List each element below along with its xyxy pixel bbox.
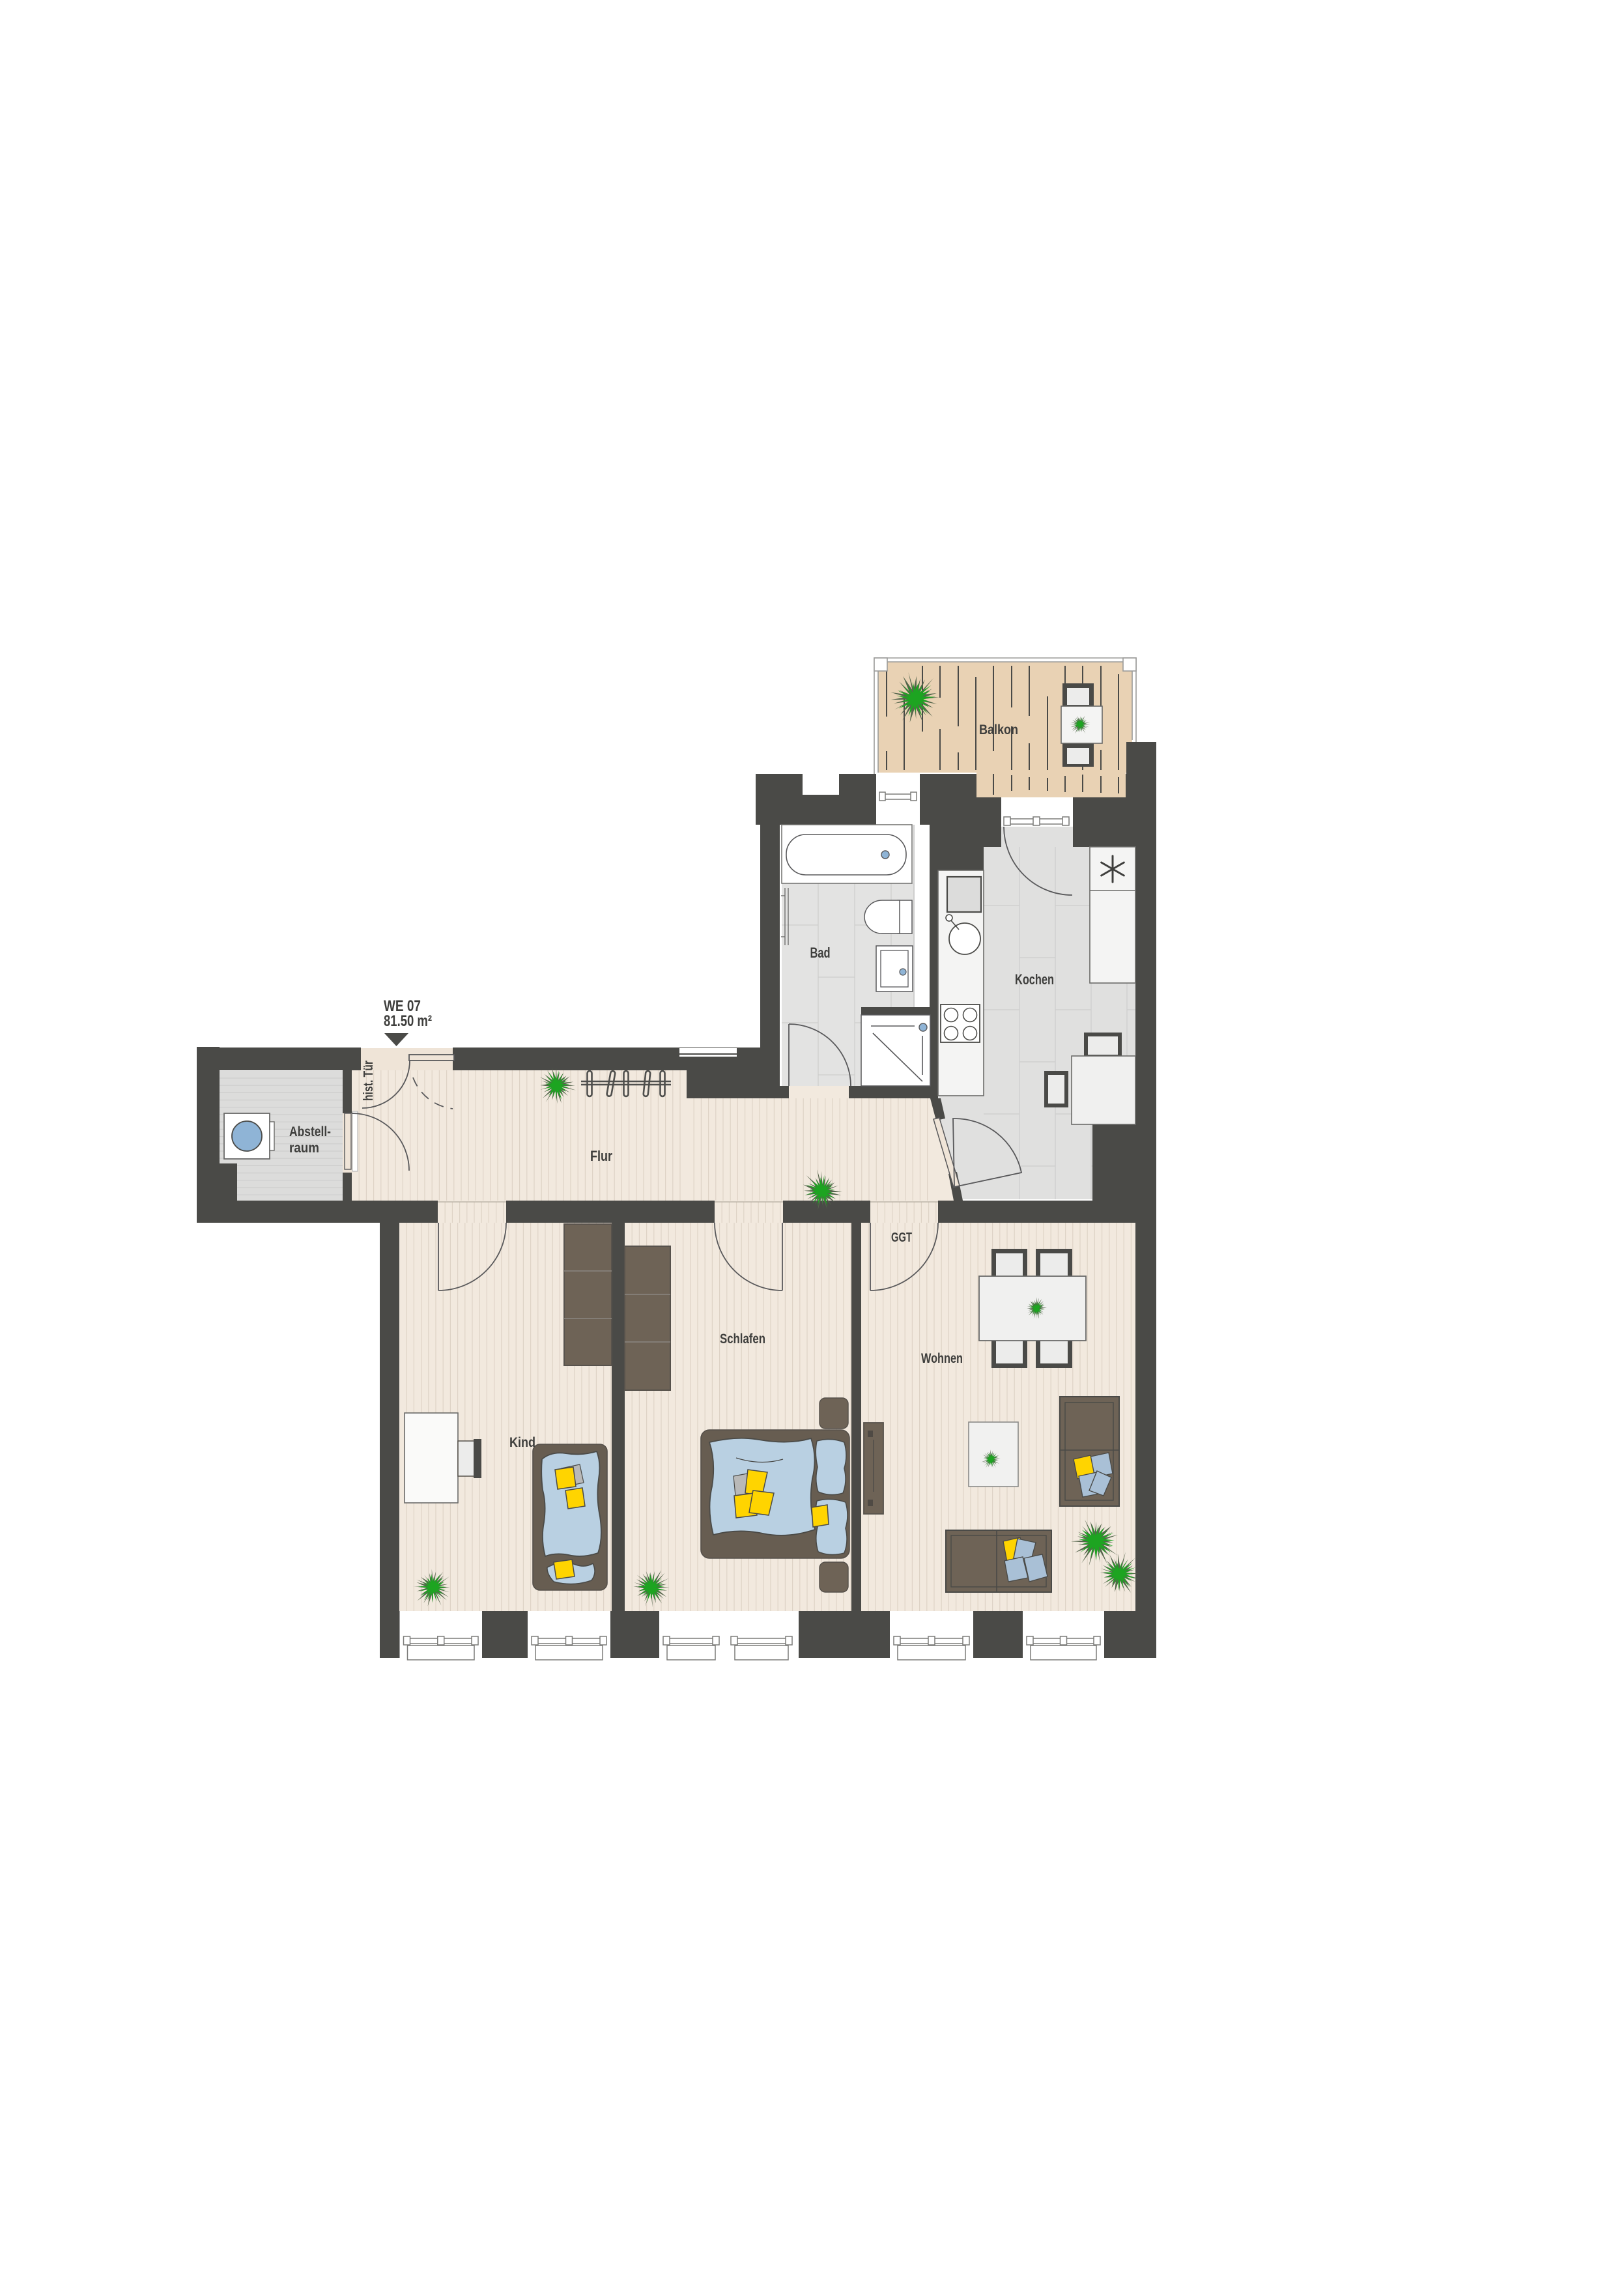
svg-text:Bad: Bad [810,945,831,961]
svg-text:Kochen: Kochen [1015,971,1054,988]
svg-text:hist. Tür: hist. Tür [362,1061,376,1101]
svg-text:Abstell-: Abstell- [289,1124,331,1139]
svg-text:Balkon: Balkon [979,722,1018,737]
svg-text:raum: raum [289,1141,319,1156]
svg-text:Flur: Flur [590,1148,612,1164]
svg-text:Schlafen: Schlafen [720,1332,765,1347]
svg-text:Kind: Kind [509,1435,535,1450]
svg-text:GGT: GGT [891,1231,912,1245]
svg-text:81.50 m²: 81.50 m² [384,1012,432,1030]
svg-text:Wohnen: Wohnen [921,1351,963,1366]
